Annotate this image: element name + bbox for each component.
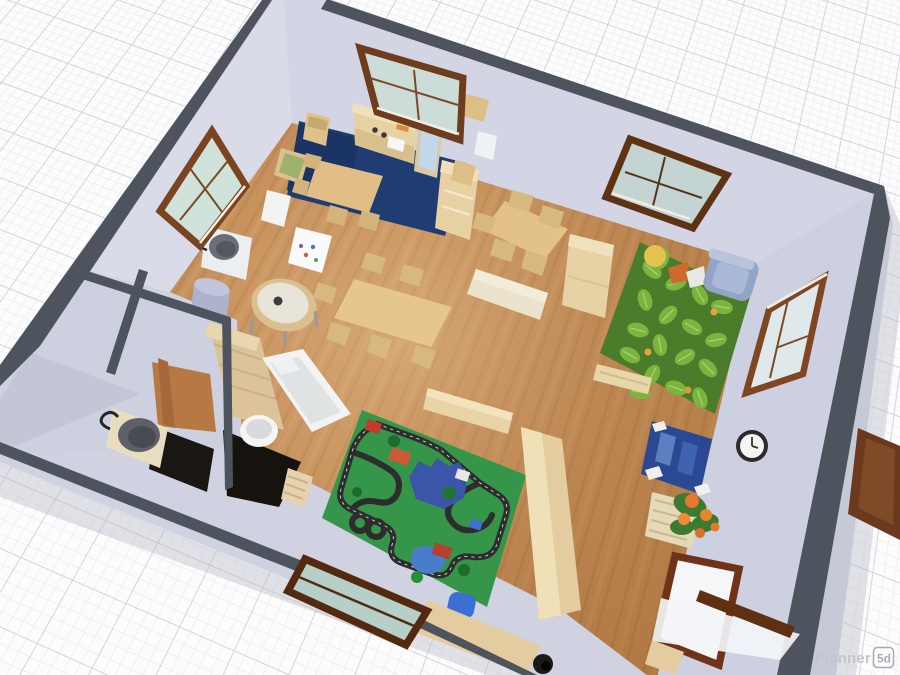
svg-text:Planner: Planner xyxy=(815,650,871,667)
svg-text:5d: 5d xyxy=(877,652,891,666)
